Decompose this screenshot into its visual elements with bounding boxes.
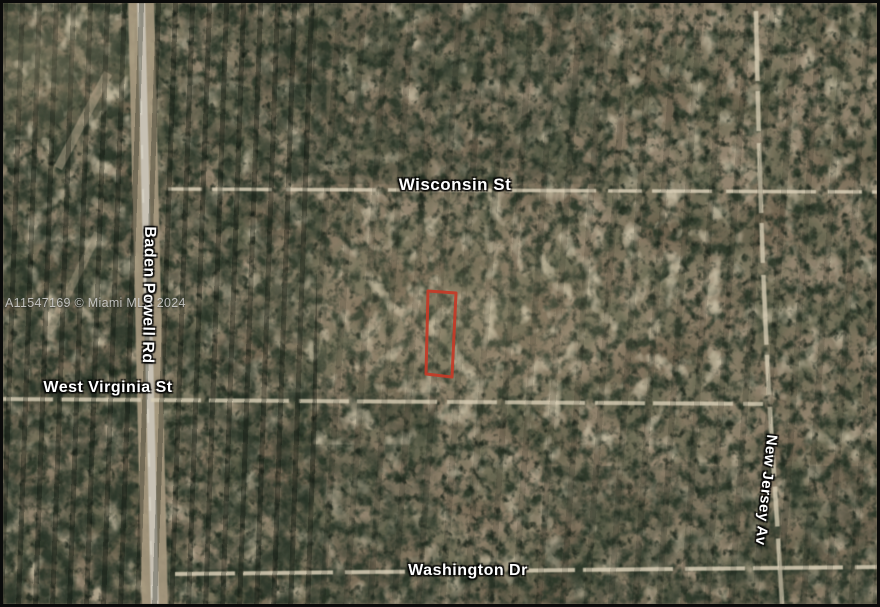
street-label-washington-dr: Washington Dr [408,562,528,580]
street-label-west-virginia-st: West Virginia St [43,379,172,397]
street-label-wisconsin-st: Wisconsin St [399,175,512,195]
mls-watermark: A11547169 © Miami MLS 2024 [5,296,186,310]
satellite-map-image[interactable]: Wisconsin St West Virginia St Washington… [0,0,880,607]
subject-parcel-outline [426,291,456,377]
street-label-baden-powell-rd: Baden Powell Rd [138,226,158,364]
